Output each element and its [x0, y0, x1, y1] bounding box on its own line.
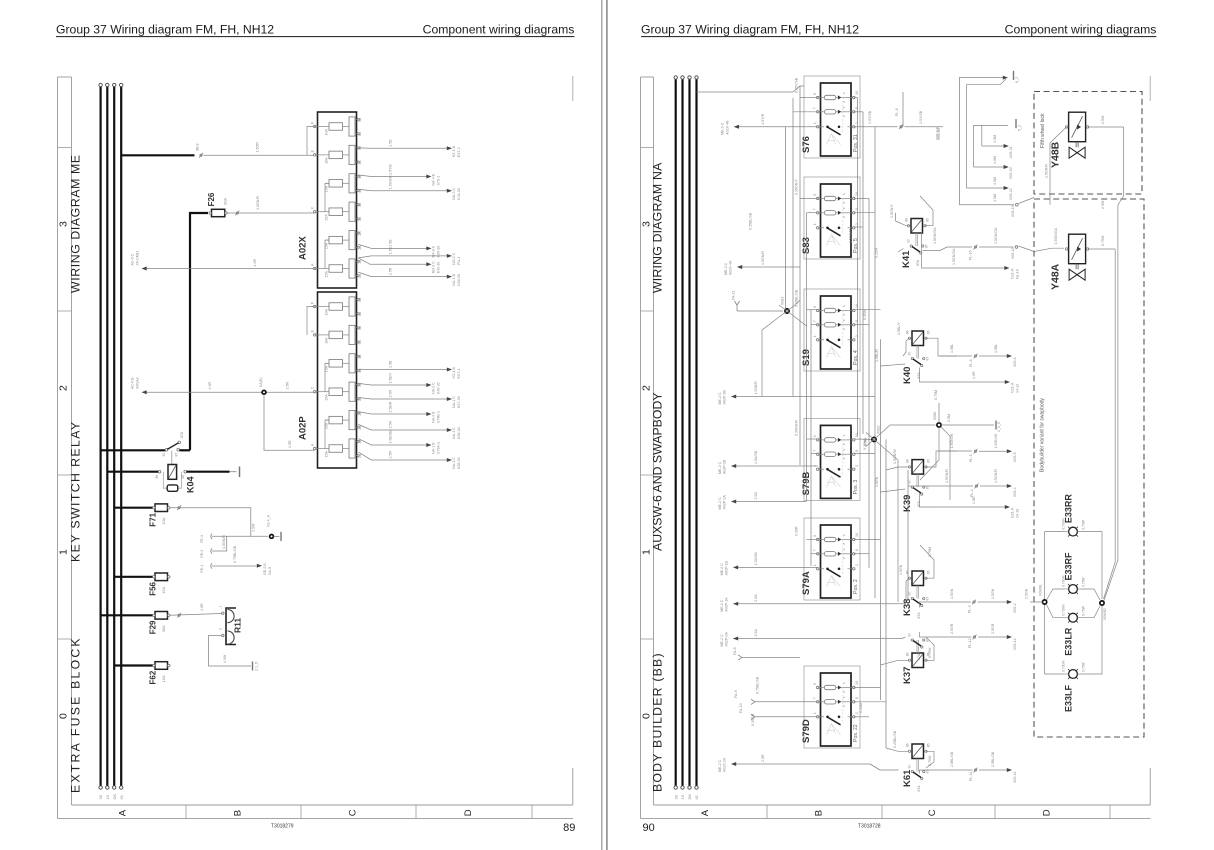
svg-text:2.5GR: 2.5GR: [991, 623, 995, 634]
svg-text:GE-2 B: GE-2 B: [263, 563, 267, 575]
svg-text:A02X-4B: A02X-4B: [725, 120, 729, 135]
svg-text:89: 89: [563, 822, 575, 834]
svg-text:PL-16: PL-16: [969, 250, 973, 260]
svg-text:87: 87: [925, 357, 929, 361]
svg-text:85: 85: [927, 459, 931, 463]
svg-text:85: 85: [926, 218, 930, 222]
svg-text:86: 86: [906, 570, 910, 574]
svg-text:FE-1: FE-1: [200, 565, 204, 573]
svg-text:NA-1 B: NA-1 B: [452, 273, 456, 285]
svg-text:6A: 6A: [358, 131, 362, 136]
svg-text:AC-0 B: AC-0 B: [131, 377, 135, 389]
svg-text:4A: 4A: [358, 368, 362, 373]
svg-text:E33LR: E33LR: [1064, 627, 1074, 656]
svg-text:A02P-0A: A02P-0A: [725, 632, 729, 647]
svg-text:R11: R11: [233, 618, 243, 633]
svg-text:9: 9: [813, 306, 817, 308]
svg-text:FA-8: FA-8: [733, 647, 737, 655]
svg-text:AUXSW-6 AND SWAPBODY: AUXSW-6 AND SWAPBODY: [651, 392, 665, 551]
svg-text:2.1_D: 2.1_D: [255, 661, 259, 671]
svg-text:1.5GN/GA: 1.5GN/GA: [1054, 227, 1058, 244]
svg-text:87A: 87A: [917, 653, 921, 660]
svg-text:0.35GN/R: 0.35GN/R: [795, 420, 799, 436]
svg-text:1.5GN/R: 1.5GN/R: [994, 469, 998, 483]
svg-text:A02P-1A: A02P-1A: [725, 597, 729, 612]
svg-text:A02P: A02P: [298, 416, 309, 440]
svg-text:K41-30: K41-30: [457, 188, 461, 200]
svg-text:0.75BL/SB: 0.75BL/SB: [233, 545, 237, 563]
svg-text:D: D: [463, 809, 474, 816]
svg-text:3A: 3A: [358, 396, 362, 401]
svg-text:15: 15: [680, 794, 685, 799]
svg-text:ME-2 C: ME-2 C: [720, 563, 724, 576]
svg-text:F26: F26: [207, 192, 216, 206]
svg-text:A02P-2A: A02P-2A: [723, 495, 727, 510]
svg-text:2.5M: 2.5M: [947, 414, 951, 422]
svg-text:15: 15: [105, 794, 110, 799]
svg-text:X0GA2: X0GA2: [135, 377, 139, 389]
svg-text:2.5BL/SB: 2.5BL/SB: [991, 751, 995, 767]
svg-text:0.75GN: 0.75GN: [1062, 660, 1066, 672]
svg-text:FA-9: FA-9: [734, 690, 738, 698]
svg-text:X05-24: X05-24: [1009, 188, 1013, 200]
svg-text:15A: 15A: [161, 675, 166, 682]
svg-text:0.75W: 0.75W: [1082, 577, 1086, 587]
svg-text:1: 1: [813, 223, 817, 225]
svg-text:2.5A: 2.5A: [754, 492, 758, 500]
svg-text:NA-1 C: NA-1 C: [452, 457, 456, 469]
svg-text:2: 2: [219, 628, 223, 630]
svg-text:K41: K41: [901, 250, 912, 268]
svg-text:K38-30: K38-30: [457, 457, 461, 469]
svg-text:8: 8: [855, 549, 859, 551]
svg-text:87A: 87A: [917, 612, 921, 619]
svg-text:4.0M: 4.0M: [993, 156, 997, 164]
svg-text:86: 86: [906, 743, 910, 747]
svg-text:1.5Y/R: 1.5Y/R: [761, 113, 765, 124]
svg-text:B: B: [813, 810, 824, 816]
svg-text:0.75W: 0.75W: [1082, 519, 1086, 529]
svg-text:2.5A: 2.5A: [754, 594, 758, 602]
svg-text:15A: 15A: [325, 214, 329, 221]
svg-text:ME-2 C: ME-2 C: [718, 497, 722, 510]
svg-text:K42-30: K42-30: [437, 262, 441, 274]
svg-text:1.5OR: 1.5OR: [256, 142, 260, 153]
svg-text:NO-3 C: NO-3 C: [432, 261, 436, 274]
svg-text:4B: 4B: [358, 354, 362, 359]
svg-text:X0W82: X0W82: [1103, 608, 1107, 620]
svg-text:C: C: [310, 386, 314, 389]
svg-text:ME-2 C: ME-2 C: [718, 759, 722, 772]
svg-text:1.5R: 1.5R: [972, 371, 976, 379]
svg-text:86: 86: [905, 218, 909, 222]
svg-text:Group 37 Wiring diagram FM, FH: Group 37 Wiring diagram FM, FH, NH12: [641, 23, 859, 37]
svg-text:S79A: S79A: [801, 571, 812, 595]
svg-text:1.5GN/W: 1.5GN/W: [994, 433, 998, 448]
svg-text:KEY SWITCH RELAY: KEY SWITCH RELAY: [69, 420, 83, 562]
svg-text:K38: K38: [902, 599, 913, 616]
svg-text:0.75GN: 0.75GN: [1062, 604, 1066, 616]
svg-text:30: 30: [907, 633, 911, 637]
svg-text:X05-30: X05-30: [1009, 167, 1013, 179]
svg-text:1.5GN/GA: 1.5GN/GA: [933, 227, 937, 244]
svg-text:0.35BL/SB: 0.35BL/SB: [749, 212, 753, 230]
svg-text:4.0W: 4.0W: [223, 654, 227, 663]
svg-text:PU-1: PU-1: [457, 257, 461, 265]
svg-text:1.5BL: 1.5BL: [950, 344, 954, 353]
svg-text:10: 10: [855, 433, 859, 437]
svg-text:10: 10: [855, 91, 859, 95]
svg-text:9: 9: [813, 683, 817, 685]
svg-text:1.5B/Y: 1.5B/Y: [388, 372, 392, 383]
svg-text:2.5BL/SB: 2.5BL/SB: [950, 751, 954, 767]
svg-text:86: 86: [906, 459, 910, 463]
svg-text:7: 7: [813, 107, 817, 109]
svg-text:WIRING DIAGRAM ME: WIRING DIAGRAM ME: [69, 154, 83, 293]
svg-text:A02P-3B: A02P-3B: [723, 390, 727, 405]
svg-text:0.35M: 0.35M: [859, 703, 863, 713]
svg-text:1.5GN/W: 1.5GN/W: [950, 433, 954, 448]
svg-text:X05-12: X05-12: [1013, 638, 1017, 650]
svg-text:0.75W: 0.75W: [928, 755, 932, 766]
svg-text:87A: 87A: [917, 372, 921, 379]
svg-text:A02X: A02X: [298, 236, 309, 260]
svg-text:FA-11: FA-11: [732, 291, 736, 300]
svg-text:7: 7: [813, 320, 817, 322]
svg-text:1.5W: 1.5W: [252, 523, 256, 532]
svg-text:A02X-2A: A02X-2A: [723, 757, 727, 772]
svg-text:K39-30: K39-30: [457, 427, 461, 439]
svg-text:61: 61: [694, 794, 699, 799]
svg-text:30: 30: [907, 765, 911, 769]
svg-text:FE-2: FE-2: [200, 550, 204, 558]
svg-text:9: 9: [813, 194, 817, 196]
svg-text:7: 7: [813, 450, 817, 452]
svg-text:ME-2 C: ME-2 C: [718, 461, 722, 474]
svg-text:PL-11: PL-11: [969, 772, 973, 781]
svg-text:2.5R: 2.5R: [288, 440, 292, 448]
svg-text:X05-18: X05-18: [1011, 247, 1015, 259]
svg-text:KA(E): KA(E): [259, 377, 263, 387]
svg-text:A02X-4A: A02X-4A: [729, 260, 733, 275]
svg-text:8: 8: [855, 697, 859, 699]
svg-text:1.5GN/R: 1.5GN/R: [761, 251, 765, 265]
svg-text:B: B: [232, 810, 243, 816]
svg-text:6B: 6B: [358, 297, 362, 302]
svg-text:0.75W: 0.75W: [1082, 605, 1086, 615]
svg-text:85: 85: [927, 743, 931, 747]
svg-text:6A: 6A: [358, 311, 362, 316]
svg-text:2: 2: [855, 223, 859, 225]
svg-text:2.5R: 2.5R: [388, 267, 392, 275]
svg-text:WIRING DIAGRAM NA: WIRING DIAGRAM NA: [651, 162, 665, 293]
svg-text:T3018728: T3018728: [858, 824, 881, 830]
svg-text:PL-12: PL-12: [968, 638, 972, 648]
svg-text:Y48B: Y48B: [1050, 141, 1062, 168]
svg-text:X06-66: X06-66: [937, 128, 941, 140]
svg-text:K40-30: K40-30: [437, 382, 441, 394]
svg-text:2.5R: 2.5R: [761, 754, 765, 762]
svg-text:87A: 87A: [180, 431, 184, 438]
svg-text:1.5GN/R: 1.5GN/R: [222, 535, 226, 549]
svg-text:7: 7: [813, 697, 817, 699]
svg-text:PL-4: PL-4: [970, 489, 974, 497]
svg-text:0.75W: 0.75W: [1101, 235, 1105, 246]
svg-text:0.75GN: 0.75GN: [1062, 518, 1066, 530]
svg-text:30: 30: [673, 794, 678, 799]
svg-text:2: 2: [855, 564, 859, 566]
svg-text:10A: 10A: [161, 517, 166, 524]
svg-text:7: 7: [813, 549, 817, 551]
svg-text:G21-A: G21-A: [1011, 268, 1015, 279]
svg-text:X05-19: X05-19: [1011, 205, 1015, 217]
svg-text:Pos. 3: Pos. 3: [853, 480, 859, 495]
svg-text:E33LF: E33LF: [1064, 684, 1074, 712]
svg-text:ME-2 C: ME-2 C: [720, 599, 724, 612]
svg-text:G21-A: G21-A: [1011, 382, 1015, 393]
svg-text:15A: 15A: [325, 271, 329, 278]
svg-text:0.75BL/SB: 0.75BL/SB: [756, 676, 760, 694]
svg-text:6B: 6B: [358, 117, 362, 122]
svg-text:2: 2: [58, 385, 70, 391]
svg-text:1.5GN/R: 1.5GN/R: [1045, 164, 1049, 178]
svg-text:1.5B: 1.5B: [388, 246, 392, 254]
svg-text:0.5W: 0.5W: [864, 437, 868, 446]
svg-text:X0-CM11: X0-CM11: [135, 251, 139, 266]
svg-text:Fifth wheel lock: Fifth wheel lock: [1040, 113, 1046, 148]
svg-text:K61: K61: [902, 769, 913, 787]
svg-text:1.5GN/Y: 1.5GN/Y: [890, 204, 894, 218]
svg-text:85: 85: [927, 330, 931, 334]
svg-text:1.5GN: 1.5GN: [950, 588, 954, 599]
svg-text:K37: K37: [902, 667, 913, 684]
svg-text:0.35GN/Y: 0.35GN/Y: [795, 179, 799, 195]
svg-text:2: 2: [855, 122, 859, 124]
svg-text:4.0GN/R: 4.0GN/R: [256, 196, 260, 210]
svg-text:30: 30: [98, 794, 103, 799]
svg-text:ME-3 C: ME-3 C: [721, 122, 725, 135]
svg-text:4A: 4A: [358, 188, 362, 193]
svg-text:1.5SB/R: 1.5SB/R: [754, 381, 758, 395]
svg-text:Y48A: Y48A: [1050, 263, 1062, 290]
svg-text:DK: DK: [112, 794, 117, 800]
svg-text:1: 1: [813, 712, 817, 714]
svg-text:1.5Y/SB: 1.5Y/SB: [868, 110, 872, 124]
svg-text:X05-11: X05-11: [1013, 772, 1017, 783]
svg-text:A02P-2B: A02P-2B: [723, 459, 727, 474]
svg-text:ME-2 C: ME-2 C: [720, 634, 724, 647]
svg-text:1.5GN: 1.5GN: [991, 588, 995, 599]
svg-text:4.0M: 4.0M: [993, 194, 997, 202]
svg-text:1.5BL/R: 1.5BL/R: [875, 349, 879, 362]
svg-text:6_2: 6_2: [1015, 77, 1019, 83]
svg-text:0.35W: 0.35W: [863, 309, 867, 320]
svg-text:2: 2: [641, 385, 653, 391]
svg-text:5_2: 5_2: [1018, 125, 1022, 131]
svg-text:S79B-1: S79B-1: [437, 411, 441, 423]
svg-text:4.0R: 4.0R: [208, 382, 212, 390]
svg-text:NA-3 C: NA-3 C: [452, 188, 456, 200]
svg-text:61: 61: [119, 794, 124, 799]
svg-text:PL-5: PL-5: [969, 454, 973, 462]
svg-text:1A: 1A: [358, 273, 362, 278]
svg-text:1: 1: [813, 564, 817, 566]
svg-text:C: C: [927, 809, 938, 816]
svg-text:F29: F29: [149, 620, 158, 634]
svg-text:1.5GN/B: 1.5GN/B: [388, 175, 392, 189]
svg-text:Pos. 22: Pos. 22: [853, 724, 859, 742]
svg-text:X05-2: X05-2: [1013, 603, 1017, 613]
svg-text:87: 87: [924, 244, 928, 248]
svg-text:2.5A: 2.5A: [754, 629, 758, 637]
svg-text:15A: 15A: [161, 586, 166, 593]
svg-text:86: 86: [155, 475, 159, 479]
svg-text:9: 9: [813, 535, 817, 537]
svg-text:A: A: [117, 809, 128, 816]
svg-text:87A: 87A: [917, 500, 921, 507]
svg-text:1.5Y/B: 1.5Y/B: [388, 164, 392, 175]
svg-text:0.75M: 0.75M: [928, 547, 932, 557]
svg-text:D: D: [1041, 809, 1052, 816]
svg-text:30-2: 30-2: [196, 143, 200, 151]
svg-text:Pos. 5: Pos. 5: [853, 238, 859, 253]
svg-text:86: 86: [906, 652, 910, 656]
svg-text:2.5R: 2.5R: [388, 390, 392, 398]
svg-text:9: 9: [813, 93, 817, 95]
svg-text:C: C: [347, 809, 358, 816]
svg-text:87: 87: [175, 453, 179, 457]
svg-text:X05-6: X05-6: [1013, 357, 1017, 367]
svg-text:30A: 30A: [223, 198, 228, 205]
svg-text:86: 86: [906, 330, 910, 334]
svg-text:NA-1 C: NA-1 C: [452, 396, 456, 408]
svg-text:Pos. 2: Pos. 2: [853, 579, 859, 594]
svg-text:Component wiring diagrams: Component wiring diagrams: [423, 23, 575, 37]
svg-text:1.5B: 1.5B: [388, 360, 392, 368]
svg-text:A02P-1B: A02P-1B: [725, 560, 729, 575]
svg-text:S76: S76: [801, 136, 812, 153]
svg-text:1.5GN/GA: 1.5GN/GA: [952, 248, 956, 265]
svg-text:10: 10: [855, 533, 859, 537]
svg-text:87A: 87A: [917, 785, 921, 792]
svg-text:1.5GN/GA: 1.5GN/GA: [994, 227, 998, 244]
svg-text:5A: 5A: [358, 160, 362, 165]
svg-text:1.5GN/R: 1.5GN/R: [849, 229, 853, 243]
svg-text:4.0R: 4.0R: [253, 259, 257, 267]
svg-text:0.75M: 0.75M: [934, 390, 938, 400]
svg-text:2.5W: 2.5W: [1101, 115, 1105, 124]
svg-text:AC-0 C: AC-0 C: [131, 253, 135, 265]
svg-text:0.35R: 0.35R: [795, 526, 799, 536]
svg-text:4.0R: 4.0R: [200, 603, 204, 611]
svg-text:HZ-1 B: HZ-1 B: [452, 145, 456, 157]
svg-text:2.5GN: 2.5GN: [1025, 588, 1029, 599]
svg-text:C: C: [310, 206, 314, 209]
svg-text:K40: K40: [902, 367, 913, 384]
svg-text:8: 8: [855, 320, 859, 322]
svg-text:1.5GN: 1.5GN: [899, 564, 903, 575]
svg-text:15A: 15A: [325, 394, 329, 401]
svg-text:T3018279: T3018279: [271, 824, 294, 830]
svg-text:2: 2: [855, 335, 859, 337]
svg-text:1.5BL/Y: 1.5BL/Y: [897, 322, 901, 335]
svg-text:87: 87: [925, 597, 929, 601]
svg-text:S76-1: S76-1: [437, 176, 441, 186]
svg-text:4.0M: 4.0M: [993, 177, 997, 185]
svg-text:NA-4 B: NA-4 B: [432, 173, 436, 185]
svg-text:14-12: 14-12: [1015, 384, 1019, 393]
svg-text:NA-2 B: NA-2 B: [432, 411, 436, 423]
svg-text:1.5A/SB: 1.5A/SB: [754, 450, 758, 464]
svg-text:14-16: 14-16: [1015, 509, 1019, 518]
svg-text:NO-2 C: NO-2 C: [452, 252, 456, 265]
svg-text:PL-8: PL-8: [895, 108, 899, 116]
svg-text:30A: 30A: [161, 625, 166, 632]
svg-text:K04: K04: [186, 476, 196, 493]
svg-text:S79D: S79D: [801, 719, 812, 743]
svg-text:9: 9: [813, 435, 817, 437]
svg-text:EXT-1: EXT-1: [457, 369, 461, 379]
svg-text:8: 8: [855, 450, 859, 452]
svg-text:2.5R: 2.5R: [388, 421, 392, 429]
svg-text:X080: X080: [933, 412, 937, 420]
svg-text:Bodybuilder variant for swapbo: Bodybuilder variant for swapbody: [1040, 398, 1046, 472]
svg-text:X081: X081: [781, 297, 785, 305]
svg-text:1.5A/SB: 1.5A/SB: [754, 552, 758, 566]
svg-text:Pos. 4: Pos. 4: [853, 350, 859, 365]
svg-text:4B: 4B: [358, 174, 362, 179]
svg-text:0.75W: 0.75W: [1082, 662, 1086, 672]
svg-text:F56: F56: [149, 581, 158, 595]
svg-text:K39: K39: [902, 495, 913, 512]
svg-text:EXTRA FUSE BLOCK: EXTRA FUSE BLOCK: [69, 636, 83, 793]
svg-text:1.5B/R: 1.5B/R: [388, 401, 392, 412]
svg-text:1: 1: [813, 335, 817, 337]
svg-text:X05-5: X05-5: [1013, 452, 1017, 462]
svg-text:EXT-2: EXT-2: [457, 147, 461, 157]
svg-text:0.25W: 0.25W: [875, 247, 879, 258]
svg-text:1.5GN/R: 1.5GN/R: [945, 469, 949, 483]
svg-text:ME-2 C: ME-2 C: [718, 392, 722, 405]
svg-text:2B: 2B: [358, 231, 362, 236]
svg-text:NA-1 B: NA-1 B: [432, 442, 436, 454]
svg-text:1: 1: [219, 606, 223, 608]
svg-text:FE-3: FE-3: [200, 535, 204, 543]
svg-text:10: 10: [855, 192, 859, 196]
svg-text:2_1_5: 2_1_5: [997, 422, 1001, 432]
svg-text:0.35Y/SB: 0.35Y/SB: [795, 77, 799, 93]
svg-text:0.75GN: 0.75GN: [1062, 575, 1066, 587]
svg-text:1.5GN/W: 1.5GN/W: [893, 449, 897, 464]
svg-text:8: 8: [855, 107, 859, 109]
svg-text:FA-10: FA-10: [739, 703, 743, 713]
svg-text:1.5B: 1.5B: [388, 239, 392, 247]
svg-text:30: 30: [162, 453, 166, 457]
svg-text:7: 7: [813, 208, 817, 210]
svg-text:2: 2: [855, 465, 859, 467]
svg-text:5A: 5A: [358, 340, 362, 345]
svg-text:10: 10: [855, 681, 859, 685]
svg-text:G21-A: G21-A: [1011, 507, 1015, 518]
svg-text:3A: 3A: [358, 216, 362, 221]
svg-text:PL-6: PL-6: [969, 359, 973, 367]
svg-text:85: 85: [927, 570, 931, 574]
svg-text:F71: F71: [149, 512, 158, 526]
svg-text:15A: 15A: [325, 451, 329, 458]
svg-text:1.5GN: 1.5GN: [875, 476, 879, 487]
svg-text:Group 37 Wiring diagram FM, FH: Group 37 Wiring diagram FM, FH, NH12: [56, 23, 274, 37]
svg-text:0.25BL/SB: 0.25BL/SB: [893, 730, 897, 748]
